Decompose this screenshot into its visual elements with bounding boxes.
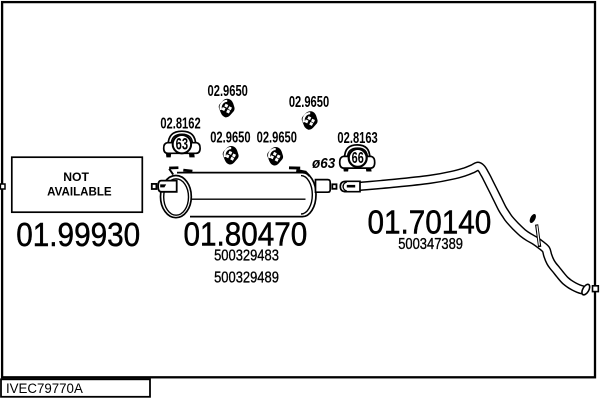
svg-text:ø63: ø63 — [312, 154, 335, 171]
svg-text:66: 66 — [352, 149, 364, 167]
svg-text:02.8163: 02.8163 — [337, 129, 378, 146]
svg-text:02.9650: 02.9650 — [257, 129, 297, 146]
svg-text:500329483: 500329483 — [214, 247, 279, 264]
svg-text:63: 63 — [176, 134, 189, 153]
svg-text:02.9650: 02.9650 — [289, 93, 329, 110]
svg-text:500347389: 500347389 — [398, 236, 463, 253]
svg-text:NOT: NOT — [63, 170, 89, 184]
svg-text:02.9650: 02.9650 — [210, 129, 250, 146]
svg-text:02.8162: 02.8162 — [160, 115, 200, 132]
svg-text:500329489: 500329489 — [214, 270, 279, 287]
svg-text:IVEC79770A: IVEC79770A — [6, 381, 84, 396]
svg-text:01.99930: 01.99930 — [16, 217, 140, 254]
svg-text:02.9650: 02.9650 — [208, 82, 248, 99]
svg-text:AVAILABLE: AVAILABLE — [47, 184, 112, 198]
